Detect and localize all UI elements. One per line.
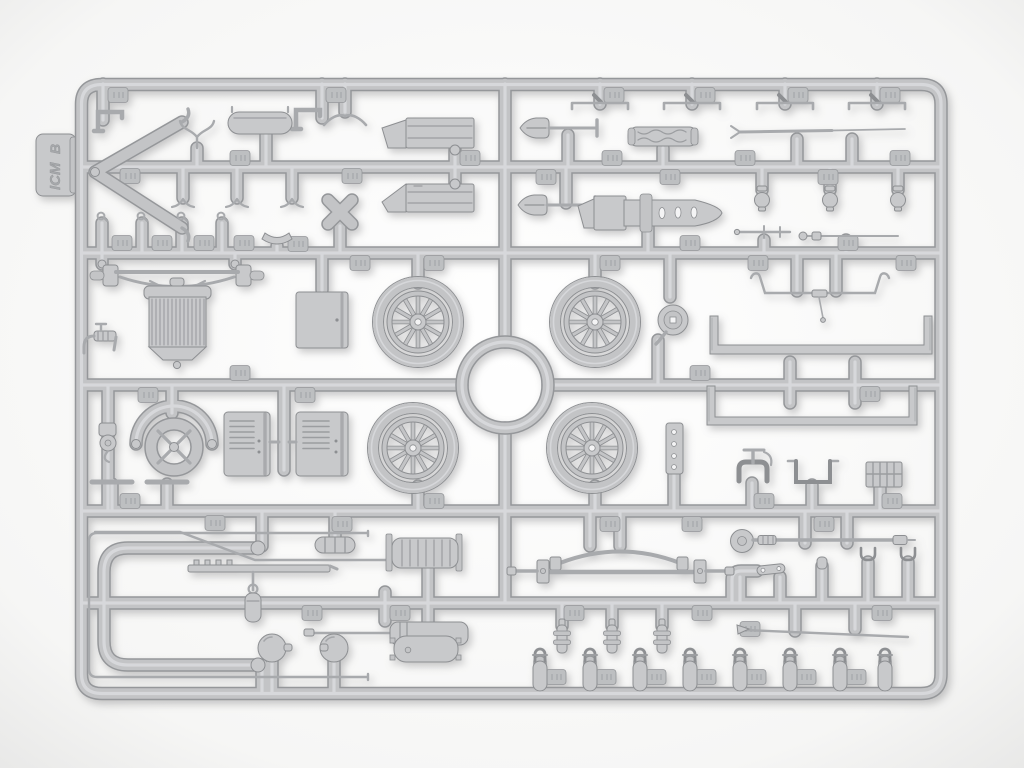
sprue-photo-canvas: ICM B bbox=[0, 0, 1024, 768]
fuel-tank-part bbox=[390, 636, 461, 662]
headlamp-ball-part bbox=[320, 634, 348, 662]
x-brace-part bbox=[328, 200, 352, 224]
muffler-large-part bbox=[386, 534, 462, 571]
shackle-part bbox=[833, 649, 847, 691]
shackle-part bbox=[683, 649, 697, 691]
shackle-part bbox=[783, 649, 797, 691]
shackle-part bbox=[583, 649, 597, 691]
shackle-part bbox=[533, 649, 547, 691]
sprue-id-tab: ICM B bbox=[36, 134, 78, 196]
hood-panel-part bbox=[296, 292, 348, 348]
photo-of-sprue: ICM B bbox=[0, 0, 1024, 768]
runner-knob bbox=[450, 179, 460, 189]
rolled-tarp-part bbox=[628, 127, 698, 146]
shackle-part bbox=[633, 649, 647, 691]
shackle-part bbox=[733, 649, 747, 691]
hood-side-panel-right bbox=[289, 412, 348, 476]
shackle-part bbox=[878, 649, 892, 691]
waffle-plate-part bbox=[866, 462, 902, 487]
sprue-letter-text: B bbox=[47, 144, 63, 154]
pipe-end-knob bbox=[251, 541, 265, 555]
capped-cylinder-top bbox=[817, 557, 827, 569]
muffler-small-part bbox=[315, 537, 355, 553]
brand-logo-text: ICM bbox=[47, 162, 64, 190]
pipe-end-knob bbox=[251, 658, 265, 672]
holed-strip-part bbox=[666, 423, 683, 474]
runner-knob bbox=[450, 145, 460, 155]
